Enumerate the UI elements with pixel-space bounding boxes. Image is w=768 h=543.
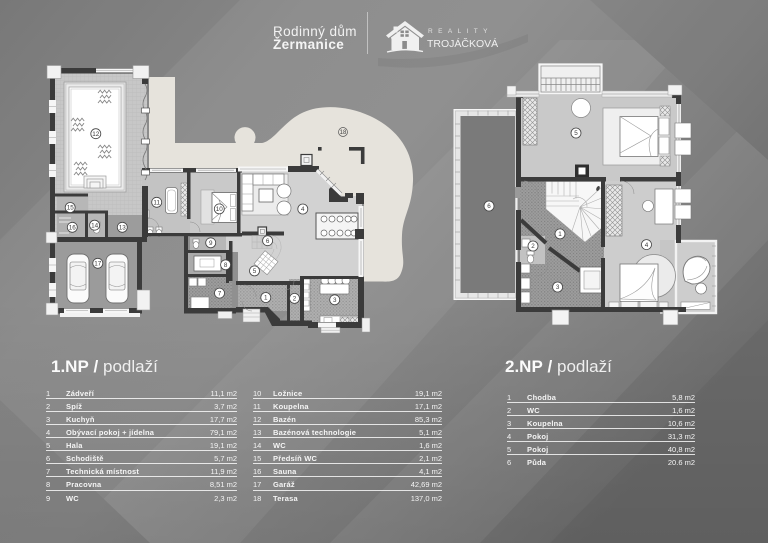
svg-text:2: 2 [531, 243, 535, 250]
svg-text:6: 6 [487, 203, 491, 210]
svg-text:17: 17 [94, 261, 102, 268]
svg-text:2: 2 [293, 296, 297, 303]
svg-text:7: 7 [218, 290, 222, 297]
svg-text:6: 6 [266, 238, 270, 245]
svg-text:18: 18 [340, 130, 347, 136]
svg-text:11: 11 [153, 200, 160, 207]
svg-text:3: 3 [556, 284, 560, 291]
svg-text:3: 3 [333, 297, 337, 304]
svg-text:5: 5 [574, 130, 578, 137]
svg-text:4: 4 [301, 206, 305, 213]
svg-text:4: 4 [645, 242, 649, 249]
svg-text:1: 1 [264, 295, 268, 302]
svg-text:12: 12 [92, 131, 100, 138]
svg-text:16: 16 [69, 225, 77, 232]
svg-text:9: 9 [209, 240, 213, 247]
svg-text:14: 14 [91, 222, 99, 229]
svg-text:10: 10 [216, 206, 224, 213]
svg-text:5: 5 [253, 268, 257, 275]
svg-text:8: 8 [224, 262, 228, 269]
svg-text:1: 1 [558, 231, 562, 238]
svg-text:15: 15 [67, 205, 75, 212]
svg-text:13: 13 [119, 225, 127, 232]
